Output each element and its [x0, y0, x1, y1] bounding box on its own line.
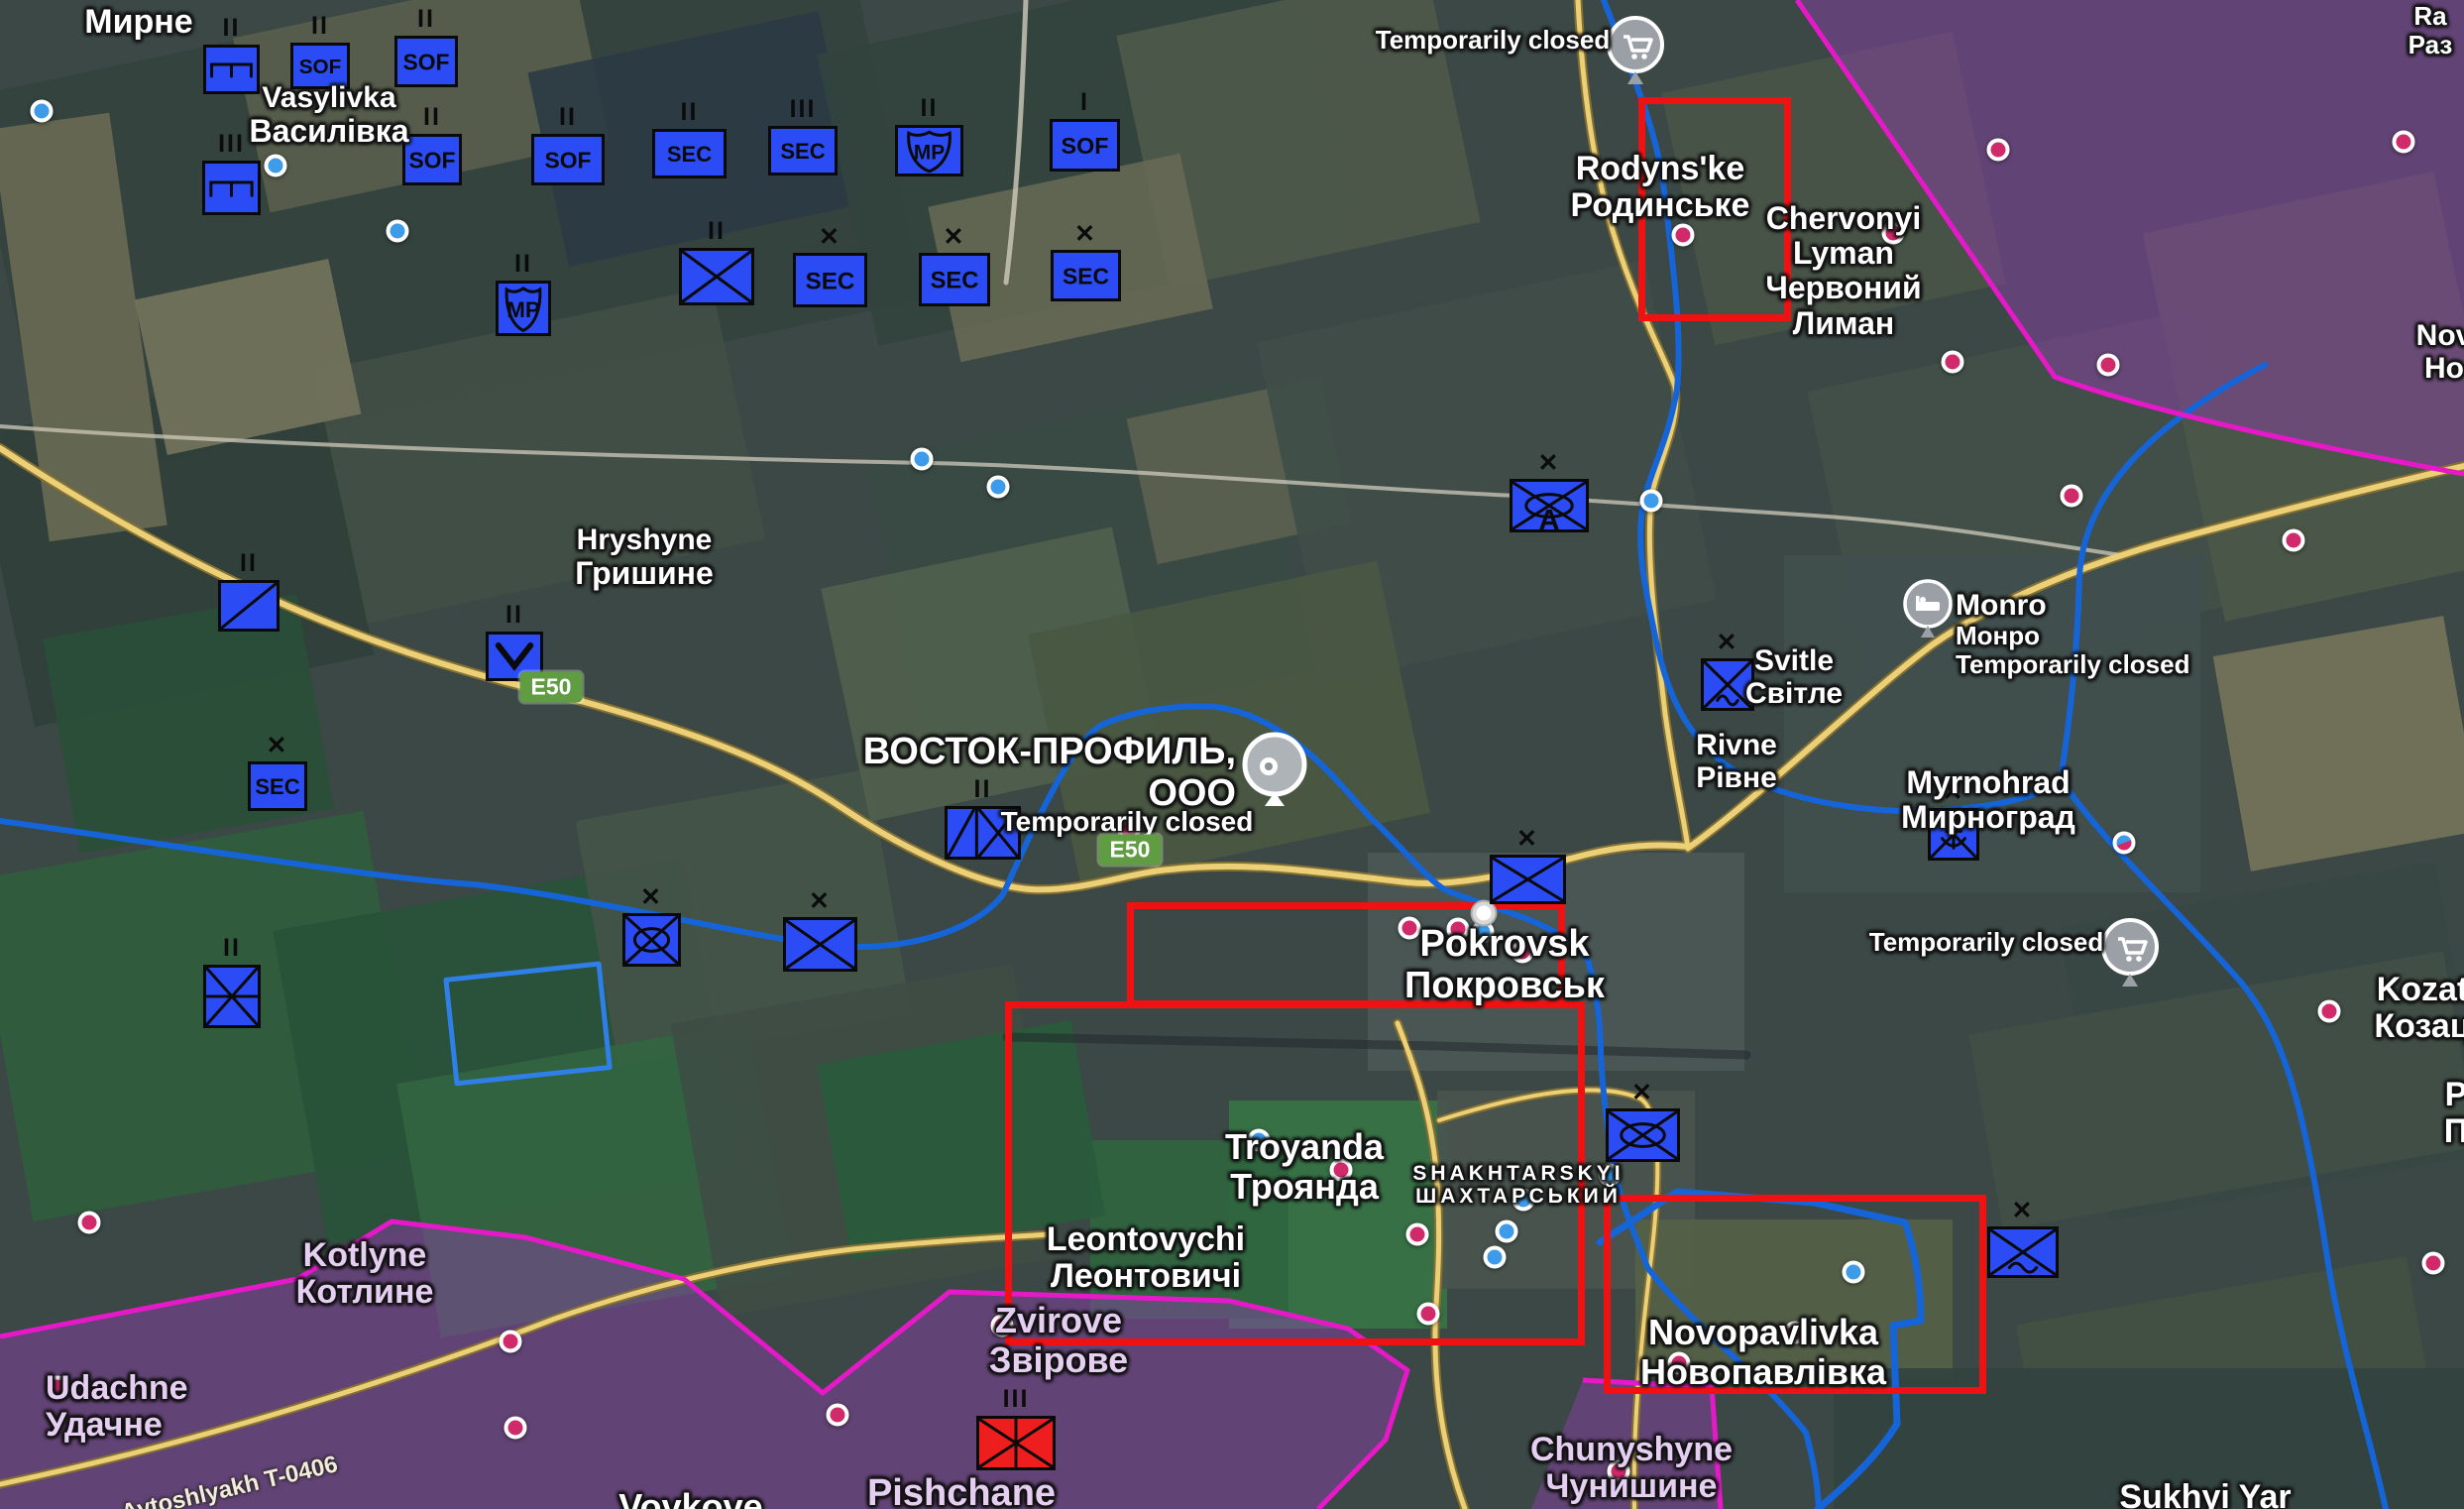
place-label-monro: MonroМонроTemporarily closed [1956, 589, 2190, 678]
place-label-line: Monro [1956, 589, 2190, 622]
place-label-troyanda: TroyandaТроянда [1225, 1127, 1384, 1206]
place-label-line: ВОСТОК-ПРОФИЛЬ, [863, 732, 1236, 773]
place-label-zvirove: ZviroveЗвірове [989, 1301, 1128, 1379]
unit-icon-inf[interactable]: ✕ [1490, 855, 1566, 904]
place-label-vostok-closed: Temporarily closed [1001, 807, 1254, 838]
unit-icon-inf[interactable]: ✕ [783, 917, 857, 972]
unit-echelon: I [1080, 88, 1089, 117]
place-label-p-edge: PП [2444, 1077, 2464, 1151]
unit-echelon: II [514, 250, 532, 279]
place-label-line: Покровськ [1404, 966, 1605, 1007]
place-label-line: Леонтовичі [1047, 1258, 1245, 1295]
map-marker-blue-dot[interactable] [1640, 490, 1663, 513]
place-label-ra-edge: RaРаз [2408, 2, 2453, 58]
place-label-line: P [2444, 1077, 2464, 1113]
unit-icon-inf[interactable]: II [679, 248, 754, 305]
place-label-hryshyne: HryshyneГришине [575, 523, 714, 591]
place-label-line: Chunyshyne [1530, 1432, 1733, 1468]
unit-symbol [218, 580, 280, 632]
place-label-line: Ra [2408, 2, 2453, 31]
road-badge-e50: E50 [520, 672, 583, 703]
unit-symbol [783, 917, 857, 972]
place-label-line: Раз [2408, 31, 2453, 59]
place-label-line: Udachne [46, 1370, 188, 1407]
place-label-rivne: RivneРівне [1696, 729, 1777, 794]
map-marker-blue-dot[interactable] [911, 448, 934, 471]
unit-icon-fort[interactable]: III [202, 161, 261, 215]
place-label-vostok-profil: ВОСТОК-ПРОФИЛЬ,ООО [863, 732, 1236, 815]
unit-symbol [203, 965, 261, 1028]
unit-icon-mecha-a[interactable]: ✕A [1510, 479, 1589, 532]
place-label-kozatske: KozatКозац [2374, 972, 2464, 1046]
svg-text:SEC: SEC [931, 268, 979, 294]
unit-icon-sec-sec[interactable]: IIISEC [768, 126, 838, 175]
place-label-line: Троянда [1225, 1167, 1384, 1207]
place-label-line: Rodyns'ke [1571, 151, 1750, 187]
map-marker-blue-dot[interactable] [1484, 1246, 1507, 1269]
place-label-line: Sukhyi Yar [2119, 1479, 2291, 1509]
place-label-line: Novopavlivka [1640, 1313, 1886, 1352]
unit-echelon: II [681, 98, 699, 127]
place-label-line: Temporarily closed [1869, 928, 2104, 957]
svg-text:MP: MP [506, 297, 540, 322]
place-label-line: Lyman [1765, 236, 1921, 271]
svg-text:SOF: SOF [402, 49, 449, 74]
svg-text:SEC: SEC [255, 774, 299, 799]
place-label-line: Чунишине [1530, 1468, 1733, 1505]
unit-icon-sec-sec[interactable]: IISEC [652, 129, 727, 178]
place-label-line: Звірове [989, 1340, 1128, 1380]
unit-icon-mp-mp[interactable]: IIMP [895, 125, 963, 176]
unit-symbol [1606, 1108, 1680, 1162]
unit-echelon: II [505, 601, 523, 630]
place-label-line: Рівне [1696, 761, 1777, 794]
map-marker-pink-dot[interactable] [2061, 485, 2083, 508]
unit-icon-mp-mp[interactable]: IIMP [496, 281, 551, 336]
place-label-line: SHAKHTARSKYI [1412, 1162, 1624, 1185]
place-label-leontovychi: LeontovychiЛеонтовичі [1047, 1221, 1245, 1296]
svg-text:SEC: SEC [806, 268, 855, 294]
place-label-line: Котлине [296, 1274, 434, 1311]
place-label-line: Мирне [84, 4, 192, 41]
unit-icon-infstar[interactable]: II [203, 965, 261, 1028]
map-marker-blue-dot[interactable] [987, 476, 1010, 499]
map-marker-pink-dot[interactable] [78, 1212, 101, 1234]
map-marker-pink-dot[interactable] [2283, 529, 2305, 552]
place-label-novopavlivka: NovopavlivkaНовопавлівка [1640, 1313, 1886, 1391]
place-label-kotlyne: KotlyneКотлине [296, 1237, 434, 1312]
unit-echelon: III [218, 130, 245, 159]
map-marker-pink-dot[interactable] [1672, 224, 1695, 247]
unit-echelon: ✕ [640, 882, 663, 912]
unit-echelon: ✕ [809, 886, 832, 916]
place-label-line: Новопавлівка [1640, 1352, 1886, 1392]
unit-icon-sec-sec[interactable]: ✕SEC [248, 761, 307, 811]
unit-symbol: SEC [652, 129, 727, 178]
unit-symbol: SEC [248, 761, 307, 811]
unit-echelon: ✕ [1717, 628, 1739, 657]
place-label-line: Leontovychi [1047, 1221, 1245, 1258]
unit-symbol: SEC [919, 253, 990, 306]
unit-symbol [622, 913, 681, 967]
map-marker-white-pin[interactable] [1473, 902, 1496, 925]
map-marker-blue-dot[interactable] [387, 220, 409, 243]
unit-echelon: III [790, 95, 817, 124]
place-label-nov-edge: NovНо [2416, 319, 2464, 385]
unit-echelon: II [311, 12, 329, 41]
unit-echelon: II [417, 5, 435, 34]
unit-symbol: SOF [394, 36, 458, 87]
place-label-line: Мирноград [1901, 800, 2075, 835]
unit-echelon: II [240, 549, 258, 578]
svg-text:SOF: SOF [544, 147, 591, 173]
map-marker-pink-dot[interactable] [1987, 139, 2010, 162]
unit-echelon: III [1003, 1385, 1030, 1414]
unit-icon-sec-sec[interactable]: ✕SEC [793, 253, 867, 307]
place-label-vovkove: Vovkove [618, 1487, 762, 1509]
place-label-line: П [2444, 1113, 2464, 1150]
place-label-closed-rodynske: Temporarily closed [1376, 26, 1611, 55]
unit-symbol [976, 1416, 1056, 1470]
unit-icon-infwave[interactable]: ✕ [1987, 1226, 2059, 1278]
unit-symbol [1490, 855, 1566, 904]
satellite-military-map: IIIISOFIISOFIIIIISOFIISOFIISECIIISECIIMP… [0, 0, 2464, 1509]
svg-text:SOF: SOF [408, 147, 455, 173]
unit-echelon: II [921, 94, 939, 123]
unit-icon-sof-sof[interactable]: IISOF [402, 134, 462, 185]
map-marker-pink-dot[interactable] [504, 1417, 527, 1440]
place-label-pishchane: Pishchane [867, 1473, 1056, 1509]
map-marker-blue-dot[interactable] [31, 100, 54, 123]
place-label-line: Myrnohrad [1901, 765, 2075, 800]
svg-text:SEC: SEC [780, 139, 825, 164]
place-label-line: Hryshyne [575, 523, 714, 556]
place-label-line: Козац [2374, 1008, 2464, 1045]
unit-symbol [679, 248, 754, 305]
unit-symbol: SEC [1051, 250, 1121, 301]
place-label-mirne: Мирне [84, 4, 192, 41]
unit-echelon: II [559, 103, 577, 132]
map-marker-blue-dot[interactable] [265, 155, 287, 177]
place-label-line: Vasylivka [249, 81, 408, 114]
place-label-rodynske: Rodyns'keРодинське [1571, 151, 1750, 225]
place-label-line: Василівка [249, 114, 408, 149]
map-marker-blue-dot[interactable] [1843, 1261, 1865, 1284]
place-label-line: Но [2416, 352, 2464, 385]
map-marker-pink-dot[interactable] [2318, 1000, 2341, 1023]
unit-icon-infvert[interactable]: III [976, 1416, 1056, 1470]
svg-text:MP: MP [914, 141, 945, 164]
place-label-line: Nov [2416, 319, 2464, 352]
place-label-line: Pishchane [867, 1473, 1056, 1509]
svg-text:A: A [1538, 504, 1559, 532]
unit-echelon: II [708, 217, 726, 246]
unit-symbol: SOF [1050, 119, 1120, 172]
unit-echelon: ✕ [944, 222, 966, 252]
unit-icon-mech[interactable]: ✕ [622, 913, 681, 967]
place-label-line: Світле [1745, 677, 1843, 710]
unit-symbol: MP [496, 281, 551, 336]
place-label-vasylivka: VasylivkaВасилівка [249, 81, 408, 149]
place-label-line: Червоний [1765, 271, 1921, 305]
map-marker-pink-dot[interactable] [2393, 131, 2415, 154]
place-label-pokrovsk: PokrovskПокровськ [1404, 924, 1605, 1007]
map-marker-pink-dot[interactable] [1942, 351, 1964, 374]
unit-echelon: ✕ [1074, 219, 1097, 249]
map-marker-split-dot[interactable] [2113, 832, 2136, 855]
place-label-svitle: SvitleСвітле [1745, 644, 1843, 710]
unit-symbol: SOF [531, 134, 605, 185]
unit-symbol [1987, 1226, 2059, 1278]
place-label-closed-myrnohrad: Temporarily closed [1869, 928, 2104, 957]
unit-echelon: II [223, 14, 241, 43]
unit-symbol: MP [895, 125, 963, 176]
cart-pin-temporarily-closed[interactable] [2098, 917, 2162, 1001]
unit-symbol: SEC [793, 253, 867, 307]
unit-symbol: SEC [768, 126, 838, 175]
unit-echelon: ✕ [1516, 824, 1539, 854]
unit-icon-sec-sec[interactable]: ✕SEC [919, 253, 990, 306]
unit-icon-sof-sof[interactable]: IISOF [531, 134, 605, 185]
unit-echelon: ✕ [2012, 1196, 2035, 1225]
place-label-sukhyi-yar: Sukhyi Yar [2119, 1479, 2291, 1509]
map-marker-pink-dot[interactable] [2097, 354, 2120, 377]
place-label-line: Гришине [575, 556, 714, 591]
place-label-line: Kotlyne [296, 1237, 434, 1274]
place-label-line: Temporarily closed [1376, 26, 1611, 55]
place-label-line: Temporarily closed [1001, 807, 1254, 838]
map-marker-pink-dot[interactable] [827, 1404, 849, 1427]
svg-text:SEC: SEC [1063, 263, 1109, 289]
unit-symbol: A [1510, 479, 1589, 532]
lodging-pin-temporarily-closed[interactable] [1900, 578, 1956, 654]
place-label-line: Vovkove [618, 1487, 762, 1509]
map-marker-pink-dot[interactable] [1417, 1303, 1440, 1326]
place-label-line: Temporarily closed [1956, 650, 2190, 679]
place-label-myrnohrad: MyrnohradМирноград [1901, 765, 2075, 835]
place-label-line: Pokrovsk [1404, 924, 1605, 966]
place-label-line: Zvirove [989, 1301, 1128, 1340]
place-label-chervonyi-lyman: ChervonyiLymanЧервонийЛиман [1765, 201, 1921, 341]
map-marker-pink-dot[interactable] [1406, 1223, 1429, 1246]
place-label-line: Монро [1956, 622, 2190, 650]
place-label-line: Svitle [1745, 644, 1843, 677]
unit-echelon: II [223, 934, 241, 963]
unit-echelon: ✕ [819, 222, 841, 252]
place-label-line: Rivne [1696, 729, 1777, 761]
place-label-line: Chervonyi [1765, 201, 1921, 236]
svg-text:SOF: SOF [1062, 133, 1109, 159]
place-label-shakhtarskyi: SHAKHTARSKYIШАХТАРСЬКИЙ [1412, 1162, 1624, 1208]
place-label-udachne: UdachneУдачне [46, 1370, 188, 1445]
unit-echelon: II [423, 103, 441, 132]
place-label-line: Kozat [2374, 972, 2464, 1008]
unit-icon-cav[interactable]: II [218, 580, 280, 632]
place-label-chunyshyne: ChunyshyneЧунишине [1530, 1432, 1733, 1506]
map-marker-blue-dot[interactable] [1496, 1220, 1518, 1243]
unit-echelon: ✕ [267, 731, 289, 760]
unit-symbol: SOF [402, 134, 462, 185]
place-label-line: Лиман [1765, 306, 1921, 341]
place-label-line: Родинське [1571, 187, 1750, 224]
map-marker-pink-dot[interactable] [500, 1331, 522, 1353]
road-badge-e50: E50 [1099, 835, 1162, 866]
unit-echelon: ✕ [1538, 448, 1561, 478]
unit-symbol [202, 161, 261, 215]
map-marker-pink-dot[interactable] [2422, 1252, 2445, 1275]
unit-icon-sec-sec[interactable]: ✕SEC [1051, 250, 1121, 301]
cart-pin-temporarily-closed[interactable] [1604, 15, 1667, 99]
unit-icon-mech[interactable]: ✕ [1606, 1108, 1680, 1162]
svg-text:SOF: SOF [299, 56, 342, 78]
place-label-line: ШАХТАРСЬКИЙ [1412, 1185, 1624, 1208]
unit-echelon: ✕ [1631, 1078, 1654, 1107]
unit-icon-sof-sof[interactable]: ISOF [1050, 119, 1120, 172]
place-label-line: Troyanda [1225, 1127, 1384, 1167]
unit-icon-sof-sof[interactable]: IISOF [394, 36, 458, 87]
place-label-line: Удачне [46, 1407, 188, 1444]
svg-text:SEC: SEC [667, 142, 712, 167]
